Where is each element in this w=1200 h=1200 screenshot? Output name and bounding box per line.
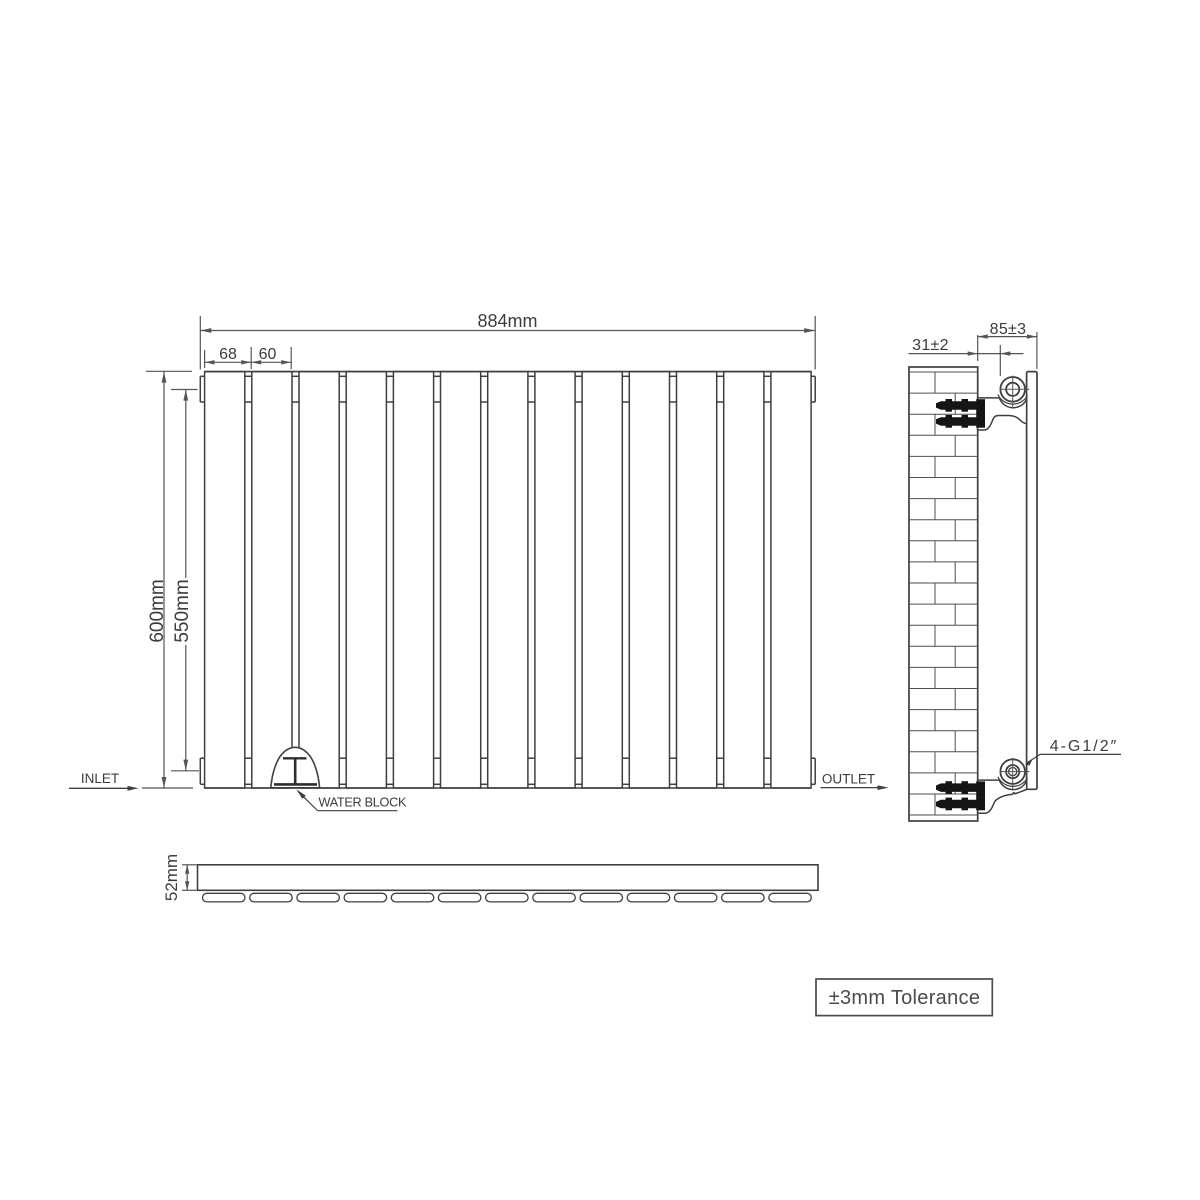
- svg-text:52mm: 52mm: [162, 854, 181, 901]
- svg-text:±3mm Tolerance: ±3mm Tolerance: [829, 987, 981, 1009]
- svg-text:85±3: 85±3: [990, 321, 1027, 338]
- svg-text:600mm: 600mm: [147, 579, 168, 642]
- svg-text:31±2: 31±2: [912, 337, 949, 354]
- svg-text:550mm: 550mm: [172, 579, 193, 642]
- svg-text:68: 68: [219, 346, 237, 363]
- svg-text:884mm: 884mm: [477, 311, 537, 331]
- svg-text:60: 60: [259, 346, 277, 363]
- svg-text:4-G1/2″: 4-G1/2″: [1050, 738, 1119, 755]
- svg-text:WATER BLOCK: WATER BLOCK: [319, 796, 407, 810]
- svg-text:OUTLET: OUTLET: [822, 772, 875, 787]
- svg-text:INLET: INLET: [81, 771, 119, 786]
